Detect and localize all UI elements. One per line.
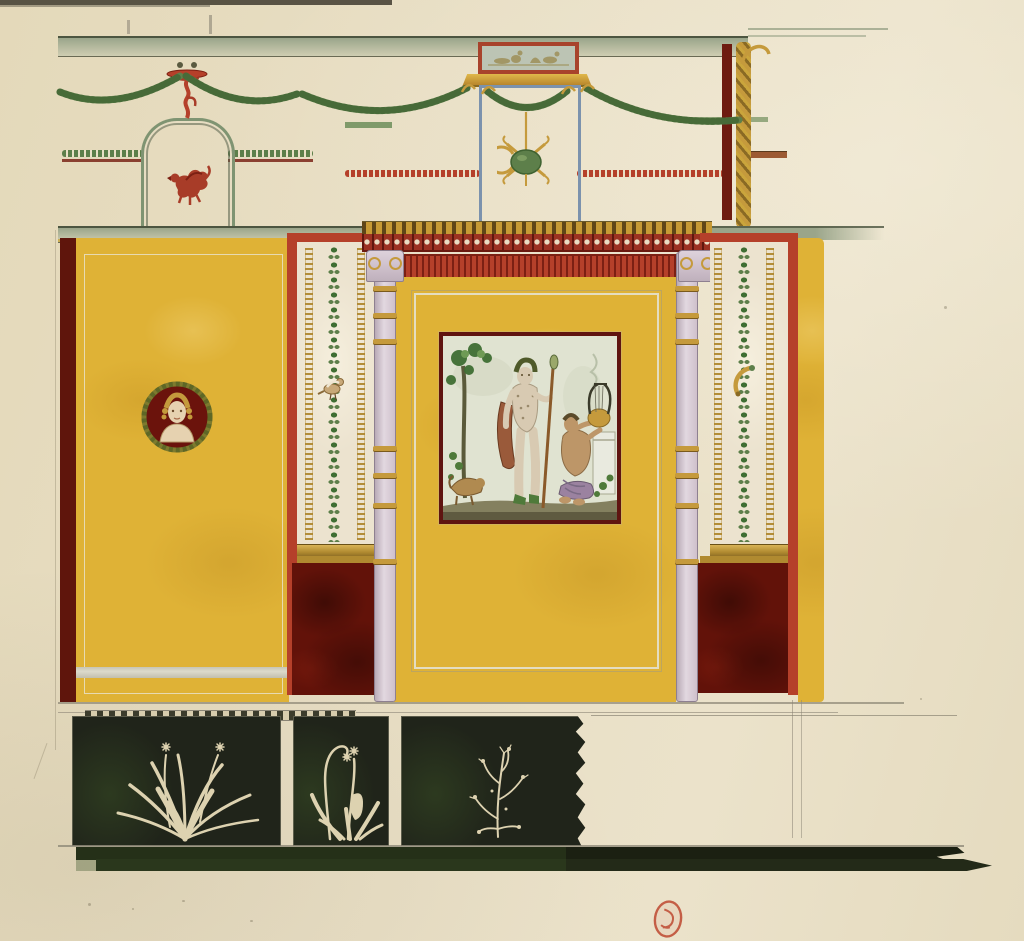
medallion-portrait (140, 380, 214, 454)
column-ring (373, 503, 397, 508)
garland-swags (55, 28, 755, 228)
gold-dot-band (305, 248, 313, 540)
dado-right-gold-band (700, 556, 788, 563)
column-ring (373, 473, 397, 478)
column-ring (373, 286, 397, 291)
picture-frame (439, 332, 621, 524)
plant-grass-tuft (100, 725, 270, 843)
top-cornice-extension-1 (748, 28, 888, 30)
paper-scratch (34, 743, 48, 779)
paper-speck (182, 900, 185, 902)
gold-dot-band (766, 248, 774, 540)
pencil-vertical-2 (801, 700, 802, 838)
rosette-band (362, 234, 712, 252)
dado-right (698, 563, 788, 693)
column-ring (675, 446, 699, 451)
cornucopia-ornament (730, 362, 758, 400)
baseboard-green-tint (76, 847, 566, 871)
paper-speck (132, 908, 134, 910)
paper-speck (944, 306, 947, 309)
paper-crease (55, 230, 56, 750)
dado-left-gold-band (297, 556, 385, 563)
pencil-vertical-1 (792, 700, 793, 838)
white-stripe (76, 667, 289, 678)
ground-line-1 (58, 702, 904, 704)
column-left (374, 252, 396, 702)
paper-speck (88, 903, 91, 906)
center-picture (443, 336, 617, 520)
paper-speck (250, 920, 253, 922)
pilaster-right-red-top (700, 233, 798, 242)
column-ring (373, 446, 397, 451)
yellow-strip-right (798, 238, 824, 702)
paper-speck (920, 698, 922, 700)
column-ring (675, 339, 699, 344)
wall-elevation-drawing (0, 0, 1024, 941)
column-ring (373, 559, 397, 564)
plant-thorn-bush (440, 735, 555, 840)
paper-top-edge-faint (0, 5, 210, 7)
plant-narcissus (300, 725, 386, 843)
column-ring (675, 313, 699, 318)
gold-dot-band (357, 248, 365, 540)
column-ring (373, 313, 397, 318)
frieze-top-line-extension (591, 715, 957, 716)
collection-stamp (649, 897, 687, 941)
yellow-panel-left-frame (84, 254, 283, 694)
top-cornice-extension-2 (748, 35, 866, 37)
pilaster-right-red-border (788, 233, 798, 695)
column-ring (675, 559, 699, 564)
capital-left (366, 250, 404, 282)
bird-ornament (317, 372, 349, 402)
column-ring (675, 473, 699, 478)
garland-hooks (462, 85, 594, 94)
left-edge-strip (60, 238, 76, 702)
column-ring (675, 503, 699, 508)
column-ring (675, 286, 699, 291)
dado-left (292, 563, 385, 695)
gold-dot-band (714, 248, 722, 540)
column-ring (373, 339, 397, 344)
column-right (676, 252, 698, 702)
